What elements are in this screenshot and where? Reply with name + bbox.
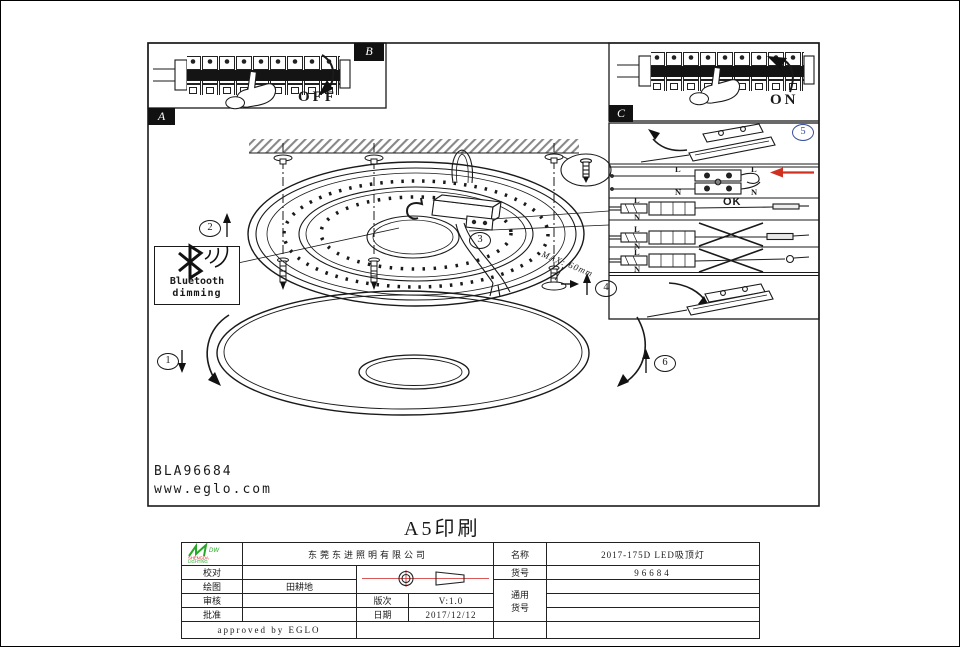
review-label: 审核 [182, 594, 243, 608]
outer-frame [148, 43, 819, 506]
version-label: 版次 [357, 594, 409, 608]
wire-l-label: L [675, 164, 681, 174]
ok-label: OK [723, 196, 742, 208]
proofread-value [243, 566, 357, 580]
bluetooth-icon [155, 241, 239, 281]
supply-cable [452, 150, 473, 183]
model-code: BLA96684 [154, 464, 233, 479]
review-value [243, 594, 357, 608]
step-1-badge: 1 [157, 353, 179, 370]
connector-open-drawing [641, 124, 775, 162]
approve-value [243, 608, 357, 622]
empty-cell [357, 622, 494, 639]
connector-close-drawing [647, 283, 773, 317]
generic-item-value-2 [547, 594, 760, 608]
wire-l-label: L [634, 224, 640, 234]
diffuser [217, 291, 589, 415]
generic-label-line1: 通用 [494, 588, 546, 601]
step-3-badge: 3 [469, 232, 491, 249]
instruction-sheet: B A C OFF ON 1 2 3 4 5 6 L N L N L N L N… [0, 0, 960, 647]
generic-item-label: 通用 货号 [494, 580, 547, 622]
panel-b-tag: B [354, 43, 384, 61]
generic-item-value-3 [547, 608, 760, 622]
generic-label-line2: 货号 [494, 601, 546, 614]
website: www.eglo.com [154, 482, 272, 497]
empty-cell [547, 622, 760, 639]
approved-note: approved by EGLO [182, 622, 357, 639]
wire-l-label: L [634, 195, 640, 205]
company-name: 东莞东进照明有限公司 [243, 543, 494, 566]
empty-cell [494, 622, 547, 639]
date-label: 日期 [357, 608, 409, 622]
title-block: DW SHENGDA LIGHTING 东莞东进照明有限公司 名称 2017-1… [181, 542, 760, 639]
wire-n-label: N [634, 212, 640, 222]
projection-symbol-icon [358, 568, 493, 589]
terminal-ln-drawing [610, 168, 814, 195]
screw-detail-balloon [561, 154, 611, 186]
ceiling-hatch [249, 139, 579, 153]
wire-n-label: N [751, 187, 757, 197]
wire-n-label: N [675, 187, 681, 197]
proofread-label: 校对 [182, 566, 243, 580]
panel-a-tag: A [148, 108, 175, 125]
item-label: 货号 [494, 566, 547, 580]
company-logo: DW SHENGDA LIGHTING [182, 543, 243, 566]
dimming-label: dimming [155, 288, 239, 299]
off-label: OFF [298, 89, 337, 106]
step-5-badge: 5 [792, 124, 814, 141]
red-arrow-icon [770, 168, 783, 178]
wire-l-label: L [751, 164, 757, 174]
step-6-badge: 6 [654, 355, 676, 372]
panel-c-tag: C [609, 105, 633, 122]
wire-n-label: N [634, 264, 640, 274]
name-label: 名称 [494, 543, 547, 566]
date-value: 2017/12/12 [409, 608, 494, 622]
on-label: ON [770, 92, 799, 109]
print-title: A5印刷 [404, 512, 480, 541]
approve-label: 批准 [182, 608, 243, 622]
step-4-badge: 4 [595, 280, 617, 297]
bluetooth-label: Bluetooth [155, 276, 239, 287]
generic-item-value-1 [547, 580, 760, 594]
drawing-value: 田耕地 [243, 580, 357, 594]
projection-symbol [357, 566, 494, 594]
wire-l-label: L [634, 247, 640, 257]
bluetooth-callout: Bluetooth dimming [154, 246, 240, 305]
drawing-label: 绘图 [182, 580, 243, 594]
mounting-plate [248, 162, 584, 306]
svg-text:LIGHTING: LIGHTING [188, 559, 208, 563]
product-name: 2017-175D LED吸顶灯 [547, 543, 760, 566]
svg-text:DW: DW [209, 548, 220, 554]
version-value: V:1.0 [409, 594, 494, 608]
item-number: 96684 [547, 566, 760, 580]
step-2-badge: 2 [199, 220, 221, 237]
shengda-logo-icon: DW SHENGDA LIGHTING [184, 543, 241, 563]
